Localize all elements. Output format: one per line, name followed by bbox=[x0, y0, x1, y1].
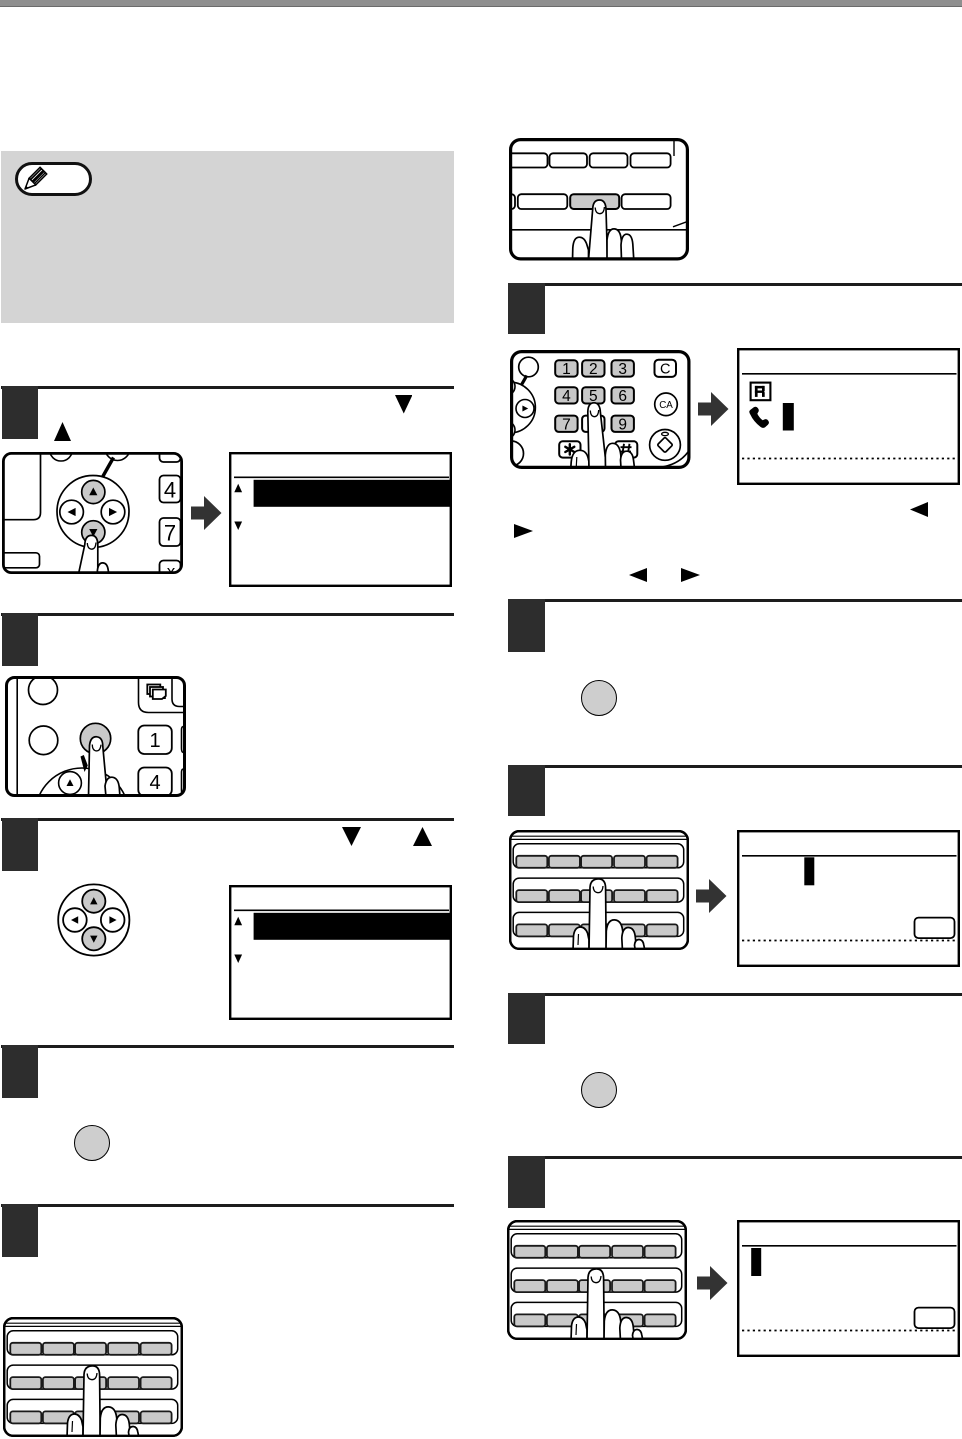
svg-text:7: 7 bbox=[164, 521, 176, 546]
svg-text:3: 3 bbox=[618, 361, 627, 378]
svg-text:4: 4 bbox=[164, 478, 176, 503]
svg-text:2: 2 bbox=[588, 361, 597, 378]
svg-text:4: 4 bbox=[149, 772, 160, 794]
svg-text:9: 9 bbox=[618, 416, 627, 433]
svg-text:C: C bbox=[659, 361, 669, 377]
svg-text:1: 1 bbox=[149, 730, 160, 752]
svg-text:4: 4 bbox=[562, 387, 571, 404]
svg-text:CA: CA bbox=[659, 399, 673, 410]
svg-text:7: 7 bbox=[562, 416, 571, 433]
svg-text:1: 1 bbox=[562, 361, 571, 378]
svg-text:6: 6 bbox=[618, 387, 627, 404]
